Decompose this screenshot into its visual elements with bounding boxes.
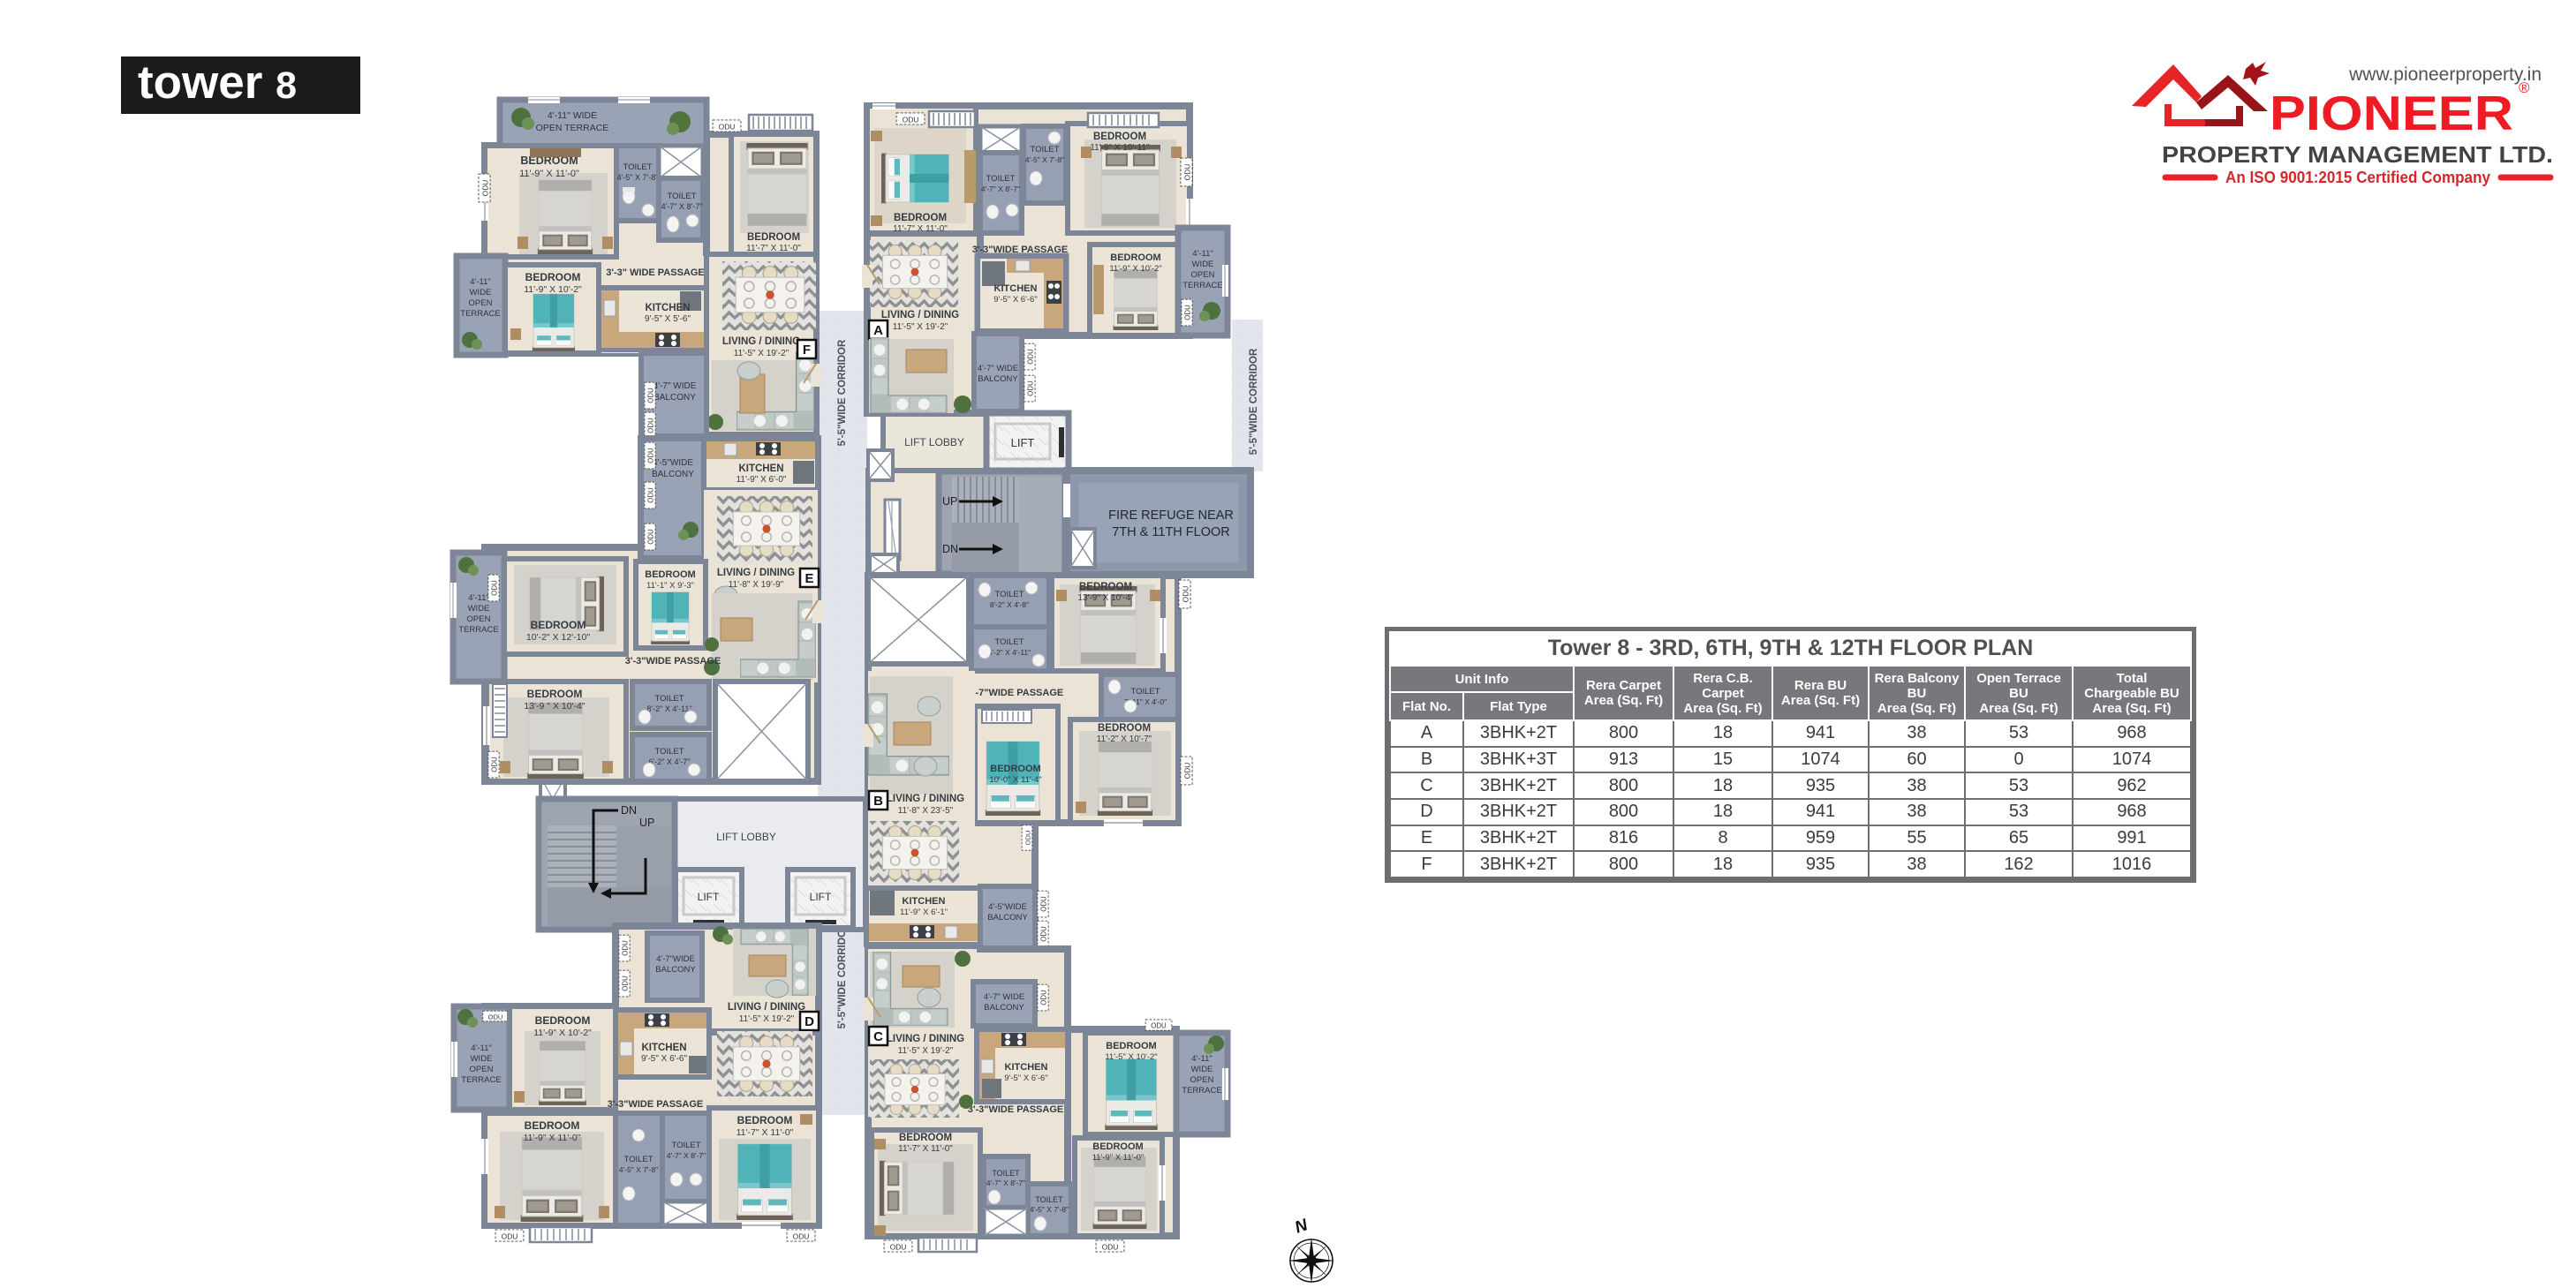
- svg-text:3'-3"WIDE PASSAGE: 3'-3"WIDE PASSAGE: [625, 656, 721, 667]
- svg-text:TOILET: TOILET: [654, 694, 684, 704]
- svg-text:TERRACE: TERRACE: [458, 625, 498, 635]
- svg-text:WIDE: WIDE: [1192, 260, 1214, 269]
- svg-text:TOILET: TOILET: [667, 192, 696, 201]
- svg-text:8'-2" X 4'-11": 8'-2" X 4'-11": [646, 704, 691, 713]
- svg-text:11'-8" X 23'-5": 11'-8" X 23'-5": [898, 806, 954, 816]
- svg-text:11'-7" X 11'-0": 11'-7" X 11'-0": [737, 1127, 794, 1138]
- svg-text:4'-5" X 7'-8": 4'-5" X 7'-8": [1030, 1205, 1069, 1214]
- svg-text:9'-5" X 6'-6": 9'-5" X 6'-6": [1004, 1073, 1047, 1083]
- svg-text:4'-7" X 8'-7": 4'-7" X 8'-7": [661, 202, 703, 211]
- svg-text:WIDE: WIDE: [1191, 1065, 1213, 1074]
- svg-text:BEDROOM: BEDROOM: [525, 1119, 580, 1132]
- svg-text:11'-1" X 9'-3": 11'-1" X 9'-3": [646, 581, 694, 591]
- svg-text:OPEN: OPEN: [470, 1065, 494, 1074]
- svg-text:BALCONY: BALCONY: [652, 470, 694, 479]
- svg-text:4'-11": 4'-11": [1192, 249, 1213, 259]
- svg-text:KITCHEN: KITCHEN: [645, 303, 690, 313]
- svg-text:4'-7" WIDE: 4'-7" WIDE: [978, 364, 1018, 373]
- svg-text:BEDROOM: BEDROOM: [645, 569, 695, 580]
- svg-text:PIONEER: PIONEER: [2270, 86, 2513, 140]
- svg-text:BEDROOM: BEDROOM: [1106, 1041, 1156, 1051]
- svg-text:11'-9" X 11'-0": 11'-9" X 11'-0": [519, 169, 579, 179]
- svg-text:4'-7"WIDE: 4'-7"WIDE: [656, 954, 695, 964]
- svg-text:LIFT LOBBY: LIFT LOBBY: [904, 436, 964, 448]
- svg-text:BALCONY: BALCONY: [984, 1003, 1024, 1013]
- svg-text:LIVING / DINING: LIVING / DINING: [881, 310, 959, 320]
- svg-text:4'-11": 4'-11": [1191, 1054, 1212, 1064]
- svg-text:LIVING / DINING: LIVING / DINING: [728, 1002, 805, 1013]
- svg-text:5'-5"WIDE CORRIDOR: 5'-5"WIDE CORRIDOR: [837, 922, 848, 1028]
- svg-text:TERRACE: TERRACE: [1182, 281, 1222, 290]
- svg-text:BEDROOM: BEDROOM: [894, 213, 947, 223]
- svg-text:TOILET: TOILET: [994, 590, 1024, 599]
- svg-text:3'-3"WIDE PASSAGE: 3'-3"WIDE PASSAGE: [968, 1104, 1063, 1115]
- svg-text:11'-9" X 10'-2": 11'-9" X 10'-2": [533, 1028, 592, 1038]
- svg-text:11'-9" X 6'-1": 11'-9" X 6'-1": [900, 908, 948, 917]
- svg-text:www.pioneerproperty.in: www.pioneerproperty.in: [2348, 64, 2542, 85]
- svg-text:LIVING / DINING: LIVING / DINING: [717, 568, 795, 578]
- svg-text:D: D: [805, 1014, 814, 1029]
- svg-text:TERRACE: TERRACE: [1182, 1086, 1221, 1096]
- svg-text:TOILET: TOILET: [1035, 1195, 1063, 1204]
- svg-text:TOILET: TOILET: [623, 162, 652, 172]
- svg-text:A: A: [873, 323, 883, 338]
- svg-text:11'-9" X 10'-2": 11'-9" X 10'-2": [1109, 264, 1161, 274]
- svg-text:7TH & 11TH FLOOR: 7TH & 11TH FLOOR: [1112, 525, 1229, 539]
- svg-text:OPEN: OPEN: [467, 614, 491, 624]
- svg-text:4'-11" WIDE: 4'-11" WIDE: [548, 110, 597, 121]
- svg-text:3'-7"WIDE PASSAGE: 3'-7"WIDE PASSAGE: [968, 688, 1063, 698]
- svg-text:4'-11": 4'-11": [468, 593, 489, 603]
- svg-text:4'-7" X 8'-7": 4'-7" X 8'-7": [986, 1179, 1025, 1187]
- svg-text:9'-5" X 6'-6": 9'-5" X 6'-6": [641, 1054, 688, 1064]
- svg-text:8'-2" X 4'-8": 8'-2" X 4'-8": [990, 600, 1029, 609]
- svg-text:4'-5" X 7'-8": 4'-5" X 7'-8": [617, 173, 659, 182]
- svg-text:11'-5" X 19'-2": 11'-5" X 19'-2": [898, 1046, 954, 1056]
- svg-text:4'-11": 4'-11": [471, 1043, 492, 1053]
- svg-text:9'-5" X 6'-6": 9'-5" X 6'-6": [993, 295, 1037, 305]
- svg-text:DN: DN: [942, 543, 958, 555]
- svg-text:4'-7" WIDE: 4'-7" WIDE: [984, 992, 1024, 1002]
- svg-text:N: N: [1293, 1216, 1311, 1238]
- svg-text:TOILET: TOILET: [654, 747, 684, 757]
- svg-text:BALCONY: BALCONY: [655, 965, 696, 975]
- svg-text:4'-7" X 8'-7": 4'-7" X 8'-7": [667, 1151, 706, 1160]
- svg-text:13'-9 " X 10'-4": 13'-9 " X 10'-4": [524, 701, 585, 712]
- svg-text:11'-5" X 10'-2": 11'-5" X 10'-2": [1105, 1052, 1157, 1062]
- svg-text:WIDE: WIDE: [471, 1054, 493, 1064]
- svg-text:BEDROOM: BEDROOM: [525, 271, 581, 283]
- svg-text:10'-2" X 12'-10": 10'-2" X 12'-10": [526, 632, 590, 643]
- svg-text:LIVING / DINING: LIVING / DINING: [887, 1034, 964, 1044]
- svg-text:WIDE: WIDE: [468, 604, 490, 614]
- svg-text:3'-3"WIDE PASSAGE: 3'-3"WIDE PASSAGE: [608, 1099, 703, 1110]
- svg-text:11'-2" X 10'-7": 11'-2" X 10'-7": [1097, 734, 1152, 744]
- svg-text:®: ®: [2519, 79, 2530, 96]
- svg-text:C: C: [873, 1029, 883, 1044]
- svg-text:BEDROOM: BEDROOM: [531, 619, 586, 631]
- svg-text:B: B: [873, 794, 883, 809]
- svg-text:BEDROOM: BEDROOM: [1079, 582, 1132, 592]
- svg-text:TOILET: TOILET: [1030, 145, 1059, 154]
- svg-text:TOILET: TOILET: [623, 1155, 653, 1164]
- svg-text:4'-7" X 8'-7": 4'-7" X 8'-7": [981, 185, 1020, 193]
- svg-text:KITCHEN: KITCHEN: [903, 896, 946, 907]
- svg-text:11'-9" X 11'-0": 11'-9" X 11'-0": [1092, 1153, 1144, 1163]
- svg-text:11'-5" X 19'-2": 11'-5" X 19'-2": [739, 1014, 795, 1024]
- svg-text:BEDROOM: BEDROOM: [1098, 723, 1151, 734]
- svg-text:11'-9" X 10'-11": 11'-9" X 10'-11": [1090, 143, 1150, 153]
- svg-text:TOILET: TOILET: [986, 174, 1015, 184]
- svg-text:OPEN TERRACE: OPEN TERRACE: [536, 123, 609, 133]
- svg-text:LIFT: LIFT: [698, 891, 720, 903]
- svg-text:BALCONY: BALCONY: [987, 913, 1028, 923]
- svg-text:BEDROOM: BEDROOM: [737, 1114, 793, 1126]
- svg-text:4'-11": 4'-11": [470, 277, 491, 287]
- svg-text:4'-5"WIDE: 4'-5"WIDE: [988, 902, 1027, 912]
- svg-text:11'-7" X 11'-0": 11'-7" X 11'-0": [898, 1144, 953, 1154]
- svg-text:BEDROOM: BEDROOM: [990, 764, 1040, 774]
- svg-text:11'-5" X 19'-2": 11'-5" X 19'-2": [893, 322, 948, 332]
- svg-text:KITCHEN: KITCHEN: [1005, 1062, 1048, 1073]
- svg-text:TOILET: TOILET: [994, 637, 1024, 647]
- svg-text:LIVING / DINING: LIVING / DINING: [887, 794, 964, 804]
- svg-text:11'-9" X 11'-0": 11'-9" X 11'-0": [524, 1133, 581, 1143]
- svg-text:TOILET: TOILET: [671, 1141, 700, 1150]
- svg-text:OPEN: OPEN: [469, 298, 493, 308]
- svg-text:10'-0" X 11'-4": 10'-0" X 11'-4": [989, 775, 1041, 785]
- svg-text:6'-2" X 4'-11": 6'-2" X 4'-11": [988, 648, 1031, 657]
- svg-text:3'-3" WIDE PASSAGE: 3'-3" WIDE PASSAGE: [606, 267, 705, 278]
- svg-text:4'-5" X 7'-8": 4'-5" X 7'-8": [619, 1165, 658, 1174]
- svg-text:BEDROOM: BEDROOM: [1093, 132, 1146, 142]
- svg-text:4'-5"WIDE: 4'-5"WIDE: [653, 458, 693, 468]
- svg-text:OPEN: OPEN: [1190, 1075, 1214, 1085]
- svg-text:WIDE: WIDE: [470, 288, 492, 298]
- svg-text:BEDROOM: BEDROOM: [535, 1014, 591, 1027]
- svg-text:5'-5"WIDE CORRIDOR: 5'-5"WIDE CORRIDOR: [1249, 348, 1259, 455]
- svg-text:F: F: [803, 343, 811, 358]
- svg-text:11'-7" X 11'-0": 11'-7" X 11'-0": [893, 224, 948, 234]
- svg-text:4'-7" WIDE: 4'-7" WIDE: [653, 381, 697, 391]
- svg-text:11'-9" X 6'-0": 11'-9" X 6'-0": [737, 475, 787, 485]
- svg-text:BALCONY: BALCONY: [653, 393, 696, 403]
- svg-text:KITCHEN: KITCHEN: [994, 283, 1038, 294]
- svg-text:UP: UP: [639, 817, 654, 829]
- svg-text:OPEN: OPEN: [1191, 270, 1215, 280]
- svg-text:BALCONY: BALCONY: [978, 374, 1018, 384]
- svg-text:4'-5" X 7'-8": 4'-5" X 7'-8": [1025, 155, 1064, 164]
- svg-text:LIVING / DINING: LIVING / DINING: [722, 336, 800, 347]
- svg-text:BEDROOM: BEDROOM: [899, 1133, 952, 1143]
- svg-text:UP: UP: [942, 495, 957, 508]
- svg-text:9'-5" X 5'-6": 9'-5" X 5'-6": [645, 314, 691, 324]
- svg-text:BEDROOM: BEDROOM: [1110, 252, 1160, 263]
- svg-text:LIFT LOBBY: LIFT LOBBY: [716, 831, 776, 843]
- svg-text:FIRE REFUGE NEAR: FIRE REFUGE NEAR: [1108, 508, 1234, 523]
- svg-text:5'-5"WIDE CORRIDOR: 5'-5"WIDE CORRIDOR: [837, 339, 848, 446]
- svg-text:LIFT: LIFT: [1011, 436, 1035, 449]
- svg-text:6'-2" X 4'-7": 6'-2" X 4'-7": [649, 757, 691, 766]
- svg-text:TOILET: TOILET: [1130, 687, 1160, 697]
- svg-text:TOILET: TOILET: [992, 1169, 1020, 1178]
- svg-text:13'-9" X 10'-4": 13'-9" X 10'-4": [1077, 593, 1134, 603]
- svg-text:KITCHEN: KITCHEN: [738, 463, 783, 474]
- svg-text:11'-8" X 19'-9": 11'-8" X 19'-9": [729, 580, 784, 590]
- svg-text:LIFT: LIFT: [810, 891, 832, 903]
- svg-text:TERRACE: TERRACE: [461, 1075, 501, 1085]
- svg-text:BEDROOM: BEDROOM: [1092, 1141, 1143, 1152]
- svg-text:An ISO 9001:2015 Certified Com: An ISO 9001:2015 Certified Company: [2225, 169, 2490, 186]
- svg-text:BEDROOM: BEDROOM: [527, 688, 583, 700]
- svg-text:PROPERTY MANAGEMENT LTD.: PROPERTY MANAGEMENT LTD.: [2162, 141, 2553, 168]
- svg-text:E: E: [805, 571, 813, 586]
- svg-text:KITCHEN: KITCHEN: [641, 1043, 686, 1053]
- svg-text:11'-5" X 19'-2": 11'-5" X 19'-2": [734, 349, 789, 358]
- svg-text:11'-9" X 10'-2": 11'-9" X 10'-2": [524, 284, 582, 295]
- svg-text:DN: DN: [621, 804, 637, 817]
- svg-text:BEDROOM: BEDROOM: [747, 232, 800, 243]
- svg-text:TERRACE: TERRACE: [460, 309, 500, 319]
